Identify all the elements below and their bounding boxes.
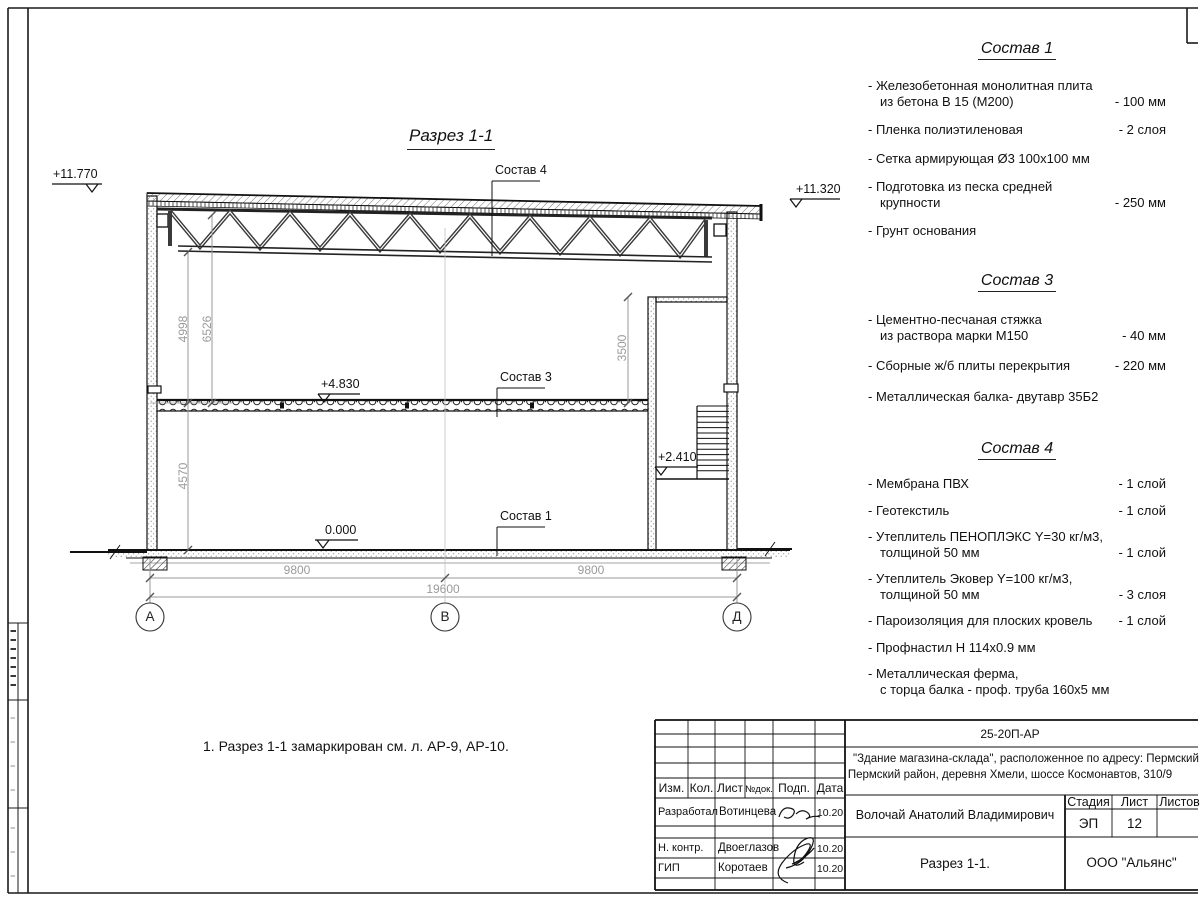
row-date-0: 10.20 bbox=[815, 807, 845, 819]
list-item: - Сетка армирующая Ø3 100х100 мм bbox=[868, 151, 1166, 167]
row-date-1: 10.20 bbox=[815, 843, 845, 855]
list-item: - Железобетонная монолитная плита из бет… bbox=[868, 78, 1166, 109]
elevation-top-right: +11.320 bbox=[796, 182, 841, 196]
project-line1: "Здание магазина-склада", расположенное … bbox=[853, 753, 1200, 765]
section-title: Разрез 1-1 bbox=[407, 126, 495, 150]
col-data: Дата bbox=[815, 781, 845, 795]
axis-bubble-d: Д bbox=[723, 609, 751, 624]
stage-label: Стадия bbox=[1065, 795, 1112, 809]
col-list: Лист bbox=[715, 781, 745, 795]
leader-label-sostav4: Состав 4 bbox=[495, 163, 547, 177]
row-name-0: Вотинцева bbox=[719, 806, 776, 818]
composition-1-title: Состав 1 bbox=[868, 40, 1166, 58]
drawing-note: 1. Разрез 1-1 замаркирован см. л. АР-9, … bbox=[203, 738, 509, 754]
dim-6526: 6526 bbox=[200, 289, 214, 369]
composition-4-title: Состав 4 bbox=[868, 440, 1166, 458]
composition-1: Состав 1 - Железобетонная монолитная пли… bbox=[868, 40, 1166, 239]
dim-4998: 4998 bbox=[176, 289, 190, 369]
elevation-ground: 0.000 bbox=[325, 523, 356, 537]
list-item: - Мембрана ПВХ- 1 слой bbox=[868, 476, 1166, 492]
signatures bbox=[778, 808, 820, 883]
list-item: - Пленка полиэтиленовая- 2 слоя bbox=[868, 122, 1166, 138]
sheet-value: 12 bbox=[1112, 816, 1157, 831]
row-role-0: Разработал bbox=[658, 806, 718, 818]
stage-value: ЭП bbox=[1065, 816, 1112, 831]
list-item: - Пароизоляция для плоских кровель- 1 сл… bbox=[868, 613, 1166, 629]
col-ndok: №док. bbox=[745, 784, 773, 795]
doc-code: 25-20П-АР bbox=[845, 727, 1175, 741]
list-item: - Утеплитель ПЕНОПЛЭКС Y=30 кг/м3, толщи… bbox=[868, 529, 1166, 560]
leader-lines bbox=[492, 181, 545, 556]
list-item: - Профнастил Н 114х0.9 мм bbox=[868, 640, 1166, 656]
list-item: - Грунт основания bbox=[868, 223, 1166, 239]
list-item: - Сборные ж/б плиты перекрытия- 220 мм bbox=[868, 358, 1166, 374]
dim-9800-left: 9800 bbox=[257, 563, 337, 577]
drawing-sheet: Разрез 1-1 +11.770 +11.320 +4.830 +2.410… bbox=[0, 0, 1200, 900]
sheet-label: Лист bbox=[1112, 795, 1157, 809]
author-name: Волочай Анатолий Владимирович bbox=[845, 808, 1065, 822]
row-role-1: Н. контр. bbox=[658, 842, 703, 854]
list-item: - Подготовка из песка средней крупности-… bbox=[868, 179, 1166, 210]
elevation-slab: +4.830 bbox=[321, 377, 360, 391]
floor-slab bbox=[108, 550, 790, 563]
elevation-landing: +2.410 bbox=[658, 450, 697, 464]
dim-19600: 19600 bbox=[403, 582, 483, 596]
list-item: - Металлическая балка- двутавр 35Б2 bbox=[868, 389, 1166, 405]
list-item: - Цементно-песчаная стяжка из раствора м… bbox=[868, 312, 1166, 343]
elevation-top-left: +11.770 bbox=[53, 167, 98, 181]
composition-3-title: Состав 3 bbox=[868, 272, 1166, 290]
axis-bubble-b: В bbox=[431, 609, 459, 624]
col-kol: Кол. bbox=[688, 781, 715, 795]
list-item: - Геотекстиль- 1 слой bbox=[868, 503, 1166, 519]
list-item: - Утеплитель Эковер Y=100 кг/м3, толщино… bbox=[868, 571, 1166, 602]
composition-3: Состав 3 - Цементно-песчаная стяжка из р… bbox=[868, 272, 1166, 404]
row-role-2: ГИП bbox=[658, 862, 680, 874]
dim-3500: 3500 bbox=[615, 308, 629, 388]
row-date-2: 10.20 bbox=[815, 863, 845, 875]
col-izm: Изм. bbox=[655, 781, 688, 795]
dim-4570: 4570 bbox=[176, 436, 190, 516]
axis-bubble-a: А bbox=[136, 609, 164, 624]
col-podp: Подп. bbox=[773, 781, 815, 795]
mezzanine-slab bbox=[157, 400, 648, 411]
dim-9800-right: 9800 bbox=[551, 563, 631, 577]
foundations bbox=[143, 557, 746, 570]
sheets-label: Листов bbox=[1157, 795, 1200, 809]
leader-label-sostav3: Состав 3 bbox=[500, 370, 552, 384]
leader-label-sostav1: Состав 1 bbox=[500, 509, 552, 523]
row-name-1: Двоеглазов bbox=[718, 842, 779, 854]
company-name: ООО "Альянс" bbox=[1065, 855, 1198, 870]
frame-strip-marks bbox=[11, 631, 17, 685]
row-name-2: Коротаев bbox=[718, 862, 768, 874]
list-item: - Металлическая ферма, с торца балка - п… bbox=[868, 666, 1166, 697]
composition-4: Состав 4 - Мембрана ПВХ- 1 слой - Геотек… bbox=[868, 440, 1166, 697]
roof-truss bbox=[157, 209, 712, 262]
frame-strip-marks-faint bbox=[11, 718, 16, 876]
project-line2: Пермский район, деревня Хмели, шоссе Кос… bbox=[845, 769, 1175, 781]
doc-title: Разрез 1-1. bbox=[845, 856, 1065, 871]
